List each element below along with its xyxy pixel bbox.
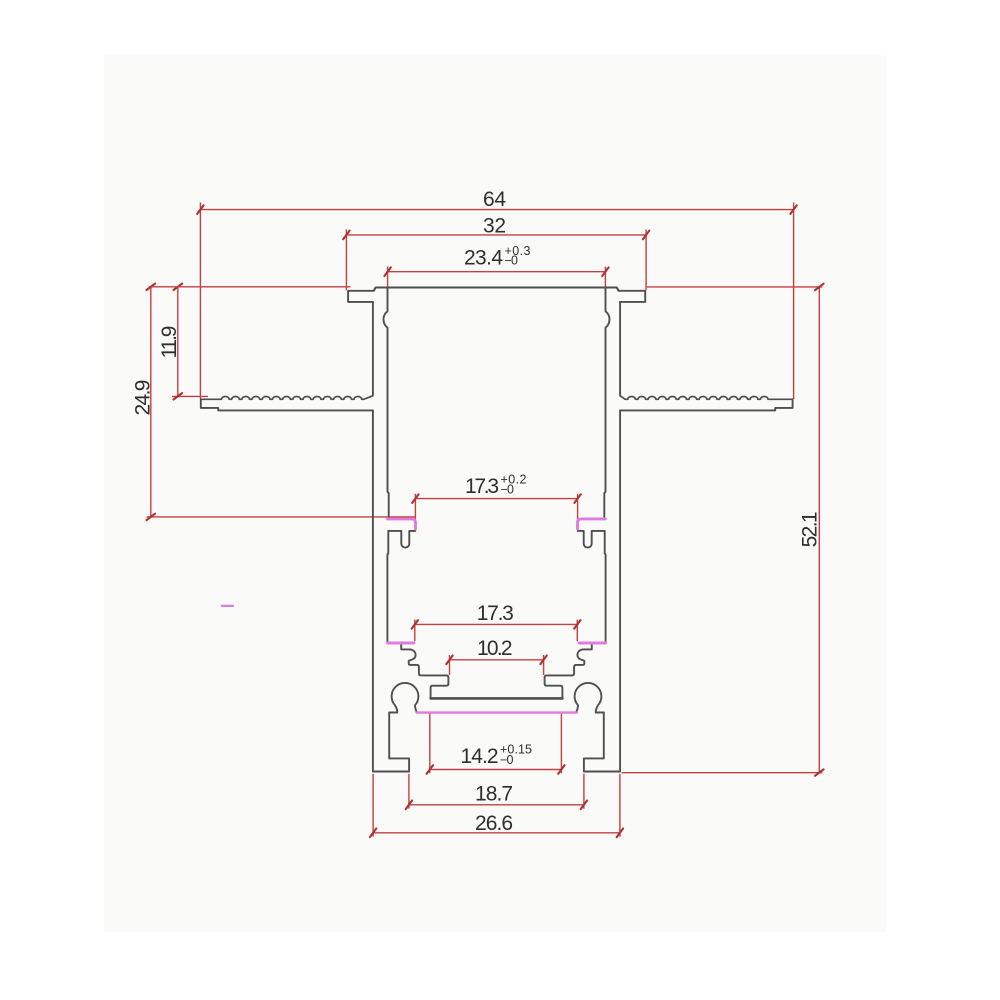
svg-text:24.9: 24.9 <box>131 380 154 416</box>
svg-text:14.2: 14.2 <box>461 745 499 768</box>
svg-text:26.6: 26.6 <box>475 812 513 835</box>
svg-text:−0: −0 <box>500 753 514 767</box>
svg-text:64: 64 <box>483 188 506 211</box>
svg-text:52.1: 52.1 <box>798 511 821 547</box>
svg-text:18.7: 18.7 <box>475 783 513 806</box>
svg-text:17.3: 17.3 <box>465 475 499 498</box>
svg-text:17.3: 17.3 <box>477 602 514 625</box>
svg-text:11.9: 11.9 <box>158 326 181 359</box>
svg-text:−0: −0 <box>505 254 519 268</box>
svg-text:23.4: 23.4 <box>464 246 503 269</box>
svg-text:−0: −0 <box>501 483 515 497</box>
svg-text:10.2: 10.2 <box>477 637 513 660</box>
svg-text:32: 32 <box>483 215 506 238</box>
